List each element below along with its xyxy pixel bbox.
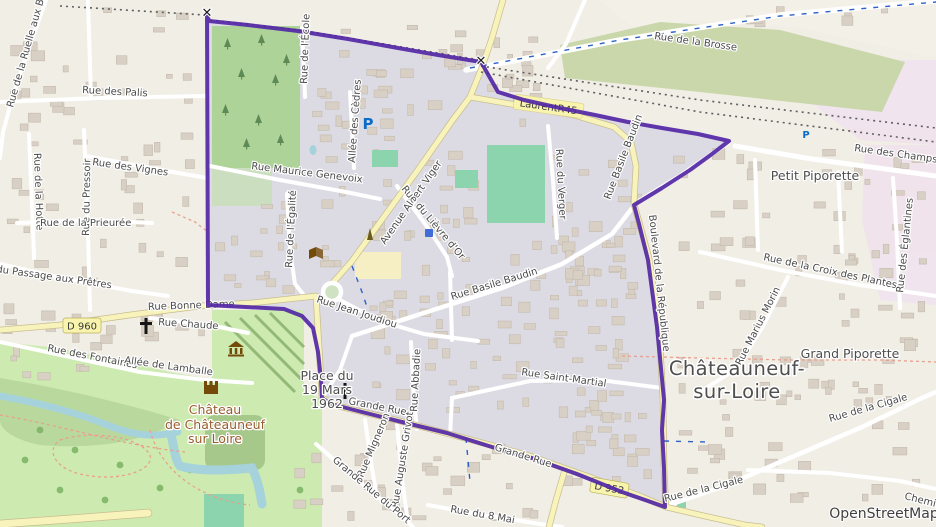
building	[453, 219, 459, 227]
building	[710, 458, 720, 463]
building	[918, 301, 925, 312]
building	[679, 384, 685, 394]
building	[153, 28, 164, 32]
building	[154, 142, 160, 152]
building	[101, 335, 113, 344]
building	[449, 381, 456, 385]
building	[901, 164, 909, 169]
building	[24, 227, 30, 233]
place-label-grand-piporette: Grand Piporette	[801, 346, 900, 361]
building	[451, 45, 463, 52]
building	[624, 435, 636, 442]
building	[46, 204, 58, 211]
building	[550, 308, 559, 319]
building	[283, 286, 294, 294]
building	[511, 254, 519, 265]
building	[571, 478, 582, 485]
building	[448, 151, 462, 159]
building	[823, 149, 836, 156]
building	[19, 190, 31, 195]
building	[498, 321, 511, 328]
building	[462, 257, 470, 261]
building	[320, 135, 331, 142]
building	[157, 11, 166, 17]
building	[382, 109, 392, 113]
building	[326, 102, 339, 109]
building	[618, 197, 631, 202]
building	[710, 292, 721, 300]
building	[577, 290, 582, 295]
building	[520, 119, 526, 127]
town-label-line2: sur-Loire	[693, 380, 780, 403]
building	[448, 166, 455, 176]
building	[420, 296, 429, 303]
building	[441, 205, 448, 213]
building	[777, 474, 784, 481]
building	[904, 340, 915, 351]
building	[673, 156, 684, 163]
town-label-line1: Châteauneuf-	[669, 357, 805, 380]
building	[235, 283, 242, 287]
building	[740, 311, 750, 320]
building	[100, 239, 106, 248]
building	[578, 300, 587, 306]
parking-icon: P	[802, 130, 809, 141]
building	[91, 342, 102, 350]
building	[679, 431, 692, 436]
building	[501, 297, 511, 306]
building	[737, 155, 744, 164]
building	[471, 361, 477, 368]
osm-attribution[interactable]: OpenStreetMap	[829, 506, 936, 522]
building	[590, 400, 599, 411]
building	[919, 259, 926, 264]
castle-icon	[204, 381, 218, 394]
building	[638, 413, 646, 418]
building	[613, 348, 619, 358]
building	[688, 468, 698, 473]
building	[595, 269, 602, 276]
building	[318, 89, 326, 97]
building	[862, 494, 868, 501]
building	[320, 261, 334, 267]
building	[381, 119, 394, 128]
building	[917, 192, 925, 200]
building	[139, 243, 146, 252]
building	[875, 384, 883, 394]
building	[587, 440, 596, 446]
building	[157, 252, 163, 257]
building	[519, 302, 530, 312]
building	[104, 8, 112, 13]
building	[326, 157, 338, 163]
building	[385, 347, 390, 355]
building	[610, 439, 619, 449]
building	[73, 333, 80, 342]
building	[278, 243, 283, 251]
building	[425, 364, 435, 371]
building	[224, 275, 236, 281]
building	[853, 382, 859, 387]
building	[11, 356, 17, 361]
building	[384, 180, 392, 187]
building	[881, 8, 887, 13]
chateau-label-line1: Château	[189, 402, 241, 417]
building	[397, 355, 410, 364]
building	[295, 468, 305, 478]
building	[144, 145, 153, 156]
building	[573, 270, 583, 279]
building	[503, 375, 517, 379]
building	[12, 178, 22, 189]
building	[323, 257, 328, 261]
building	[467, 462, 479, 472]
building	[31, 51, 45, 61]
building	[628, 457, 638, 467]
map-canvas[interactable]: Rue Bonne Dame Grande Rue LaurentR45 D 9…	[0, 0, 936, 527]
building	[231, 236, 237, 245]
building	[422, 265, 430, 275]
building	[310, 499, 323, 505]
building	[598, 391, 607, 402]
building	[787, 391, 792, 397]
building	[35, 260, 49, 267]
building	[116, 56, 127, 64]
building	[434, 457, 441, 461]
building	[44, 86, 56, 93]
building	[609, 266, 621, 272]
building	[438, 293, 444, 300]
building	[407, 25, 418, 29]
building	[313, 111, 323, 117]
building	[121, 157, 128, 161]
building	[121, 180, 126, 191]
building	[38, 373, 50, 380]
building	[429, 339, 438, 349]
building	[405, 231, 411, 240]
x-marker-icon: ✕	[476, 54, 487, 69]
building	[613, 448, 624, 456]
building	[261, 205, 272, 209]
pond	[310, 145, 317, 155]
building	[753, 484, 765, 494]
place-label-19mars-line3: 1962	[311, 396, 343, 411]
building	[725, 427, 733, 436]
building	[814, 202, 826, 208]
building	[790, 494, 803, 503]
building	[628, 283, 638, 290]
building	[183, 74, 191, 81]
building	[644, 470, 652, 479]
building	[575, 411, 585, 417]
building	[589, 222, 602, 232]
building	[506, 74, 514, 79]
building	[341, 29, 351, 33]
building	[859, 388, 868, 393]
building	[462, 307, 469, 316]
building	[428, 101, 442, 110]
building	[451, 476, 465, 486]
building	[596, 300, 606, 306]
building	[579, 170, 589, 176]
building	[332, 486, 343, 492]
building	[523, 65, 534, 76]
building	[394, 291, 406, 299]
building	[42, 311, 56, 320]
building	[533, 83, 540, 91]
building	[20, 124, 28, 130]
building	[312, 453, 321, 463]
building	[872, 251, 880, 259]
building	[277, 226, 283, 234]
building	[437, 320, 443, 329]
building	[842, 320, 849, 326]
building	[442, 349, 450, 358]
building	[367, 69, 377, 75]
building	[502, 78, 512, 88]
building	[294, 500, 306, 508]
building	[506, 483, 512, 489]
building	[469, 386, 479, 391]
building	[28, 113, 40, 122]
building	[426, 467, 438, 476]
building	[323, 245, 329, 249]
building	[401, 69, 414, 78]
building	[523, 398, 529, 407]
building	[531, 281, 540, 291]
building	[613, 255, 625, 262]
building	[530, 510, 538, 518]
building	[720, 238, 733, 246]
building	[185, 160, 194, 169]
building	[80, 366, 89, 371]
building	[746, 237, 755, 246]
building	[23, 372, 31, 378]
building	[373, 382, 380, 388]
building	[529, 37, 538, 43]
building	[322, 200, 333, 209]
building	[556, 339, 564, 348]
building	[533, 241, 542, 250]
building	[569, 286, 577, 295]
building	[166, 74, 172, 78]
building	[592, 411, 602, 416]
building	[134, 203, 143, 213]
building	[697, 301, 703, 308]
building	[872, 484, 883, 494]
building	[611, 299, 617, 308]
building	[181, 133, 193, 139]
building	[612, 414, 622, 419]
building	[826, 387, 832, 394]
building	[106, 326, 115, 335]
building	[736, 280, 745, 286]
building	[734, 201, 748, 209]
building	[4, 304, 14, 314]
building	[444, 489, 452, 495]
building	[577, 388, 585, 396]
building	[551, 246, 557, 254]
building	[625, 413, 630, 422]
building	[572, 228, 578, 237]
building	[851, 309, 859, 317]
building	[261, 229, 267, 234]
building	[586, 426, 592, 433]
building	[879, 305, 893, 310]
building	[555, 331, 567, 335]
school-area	[355, 252, 401, 279]
building	[795, 395, 801, 400]
building	[572, 444, 584, 454]
building	[607, 243, 616, 248]
building	[482, 455, 490, 460]
building	[723, 414, 730, 420]
building	[809, 379, 819, 388]
building	[464, 207, 473, 218]
building	[893, 447, 907, 455]
building	[374, 90, 388, 97]
building	[215, 243, 224, 251]
building	[901, 313, 914, 318]
building	[176, 257, 188, 266]
building	[550, 295, 558, 300]
building	[524, 324, 535, 330]
building	[508, 54, 513, 58]
building	[598, 427, 611, 432]
building	[612, 316, 624, 325]
building	[585, 407, 591, 412]
building	[63, 66, 68, 72]
place-label-19mars-line1: Place du	[300, 368, 353, 383]
building	[559, 407, 568, 418]
building	[370, 306, 377, 310]
building	[336, 116, 342, 127]
street-label-prieuree: Rue de la Prieurée	[40, 217, 131, 229]
building	[348, 511, 354, 520]
building	[679, 242, 689, 251]
building	[443, 219, 450, 224]
building	[842, 16, 853, 26]
place-label-19mars-line2: 19 Mars	[302, 382, 352, 397]
building	[608, 364, 622, 369]
building	[251, 251, 263, 257]
building	[711, 211, 725, 217]
building	[408, 105, 414, 116]
building	[708, 445, 722, 455]
building	[615, 236, 623, 247]
building	[883, 244, 889, 253]
chateau-label-line3: sur Loire	[188, 431, 242, 446]
building	[596, 345, 606, 350]
building	[413, 516, 426, 520]
building	[397, 389, 410, 400]
building	[142, 325, 154, 336]
building	[898, 423, 909, 430]
svg-text:D 960: D 960	[67, 322, 97, 333]
building	[763, 213, 770, 218]
building	[798, 461, 810, 471]
building	[623, 228, 636, 234]
building	[455, 31, 466, 37]
building	[497, 401, 503, 409]
building	[610, 391, 623, 396]
building	[340, 50, 350, 57]
building	[64, 107, 75, 115]
place-label-petit-piporette: Petit Piporette	[771, 168, 860, 183]
building	[183, 197, 189, 207]
building	[22, 89, 30, 98]
building	[865, 179, 870, 184]
building	[562, 242, 575, 252]
road-ref-badge-d960: D 960	[63, 318, 101, 333]
building	[465, 218, 478, 224]
building	[385, 136, 395, 141]
building	[493, 356, 501, 361]
building	[318, 125, 329, 130]
building	[30, 76, 37, 82]
building	[589, 327, 601, 334]
building	[572, 358, 583, 363]
building	[845, 260, 856, 265]
building	[266, 279, 276, 287]
chateau-label-line2: de Châteauneuf	[165, 417, 266, 432]
building	[6, 320, 17, 325]
building	[636, 448, 650, 455]
x-marker-icon: ✕	[202, 6, 213, 21]
building	[839, 294, 844, 300]
building	[769, 443, 783, 451]
building	[509, 335, 520, 344]
building	[440, 186, 453, 190]
parking-icon: P	[363, 115, 374, 133]
